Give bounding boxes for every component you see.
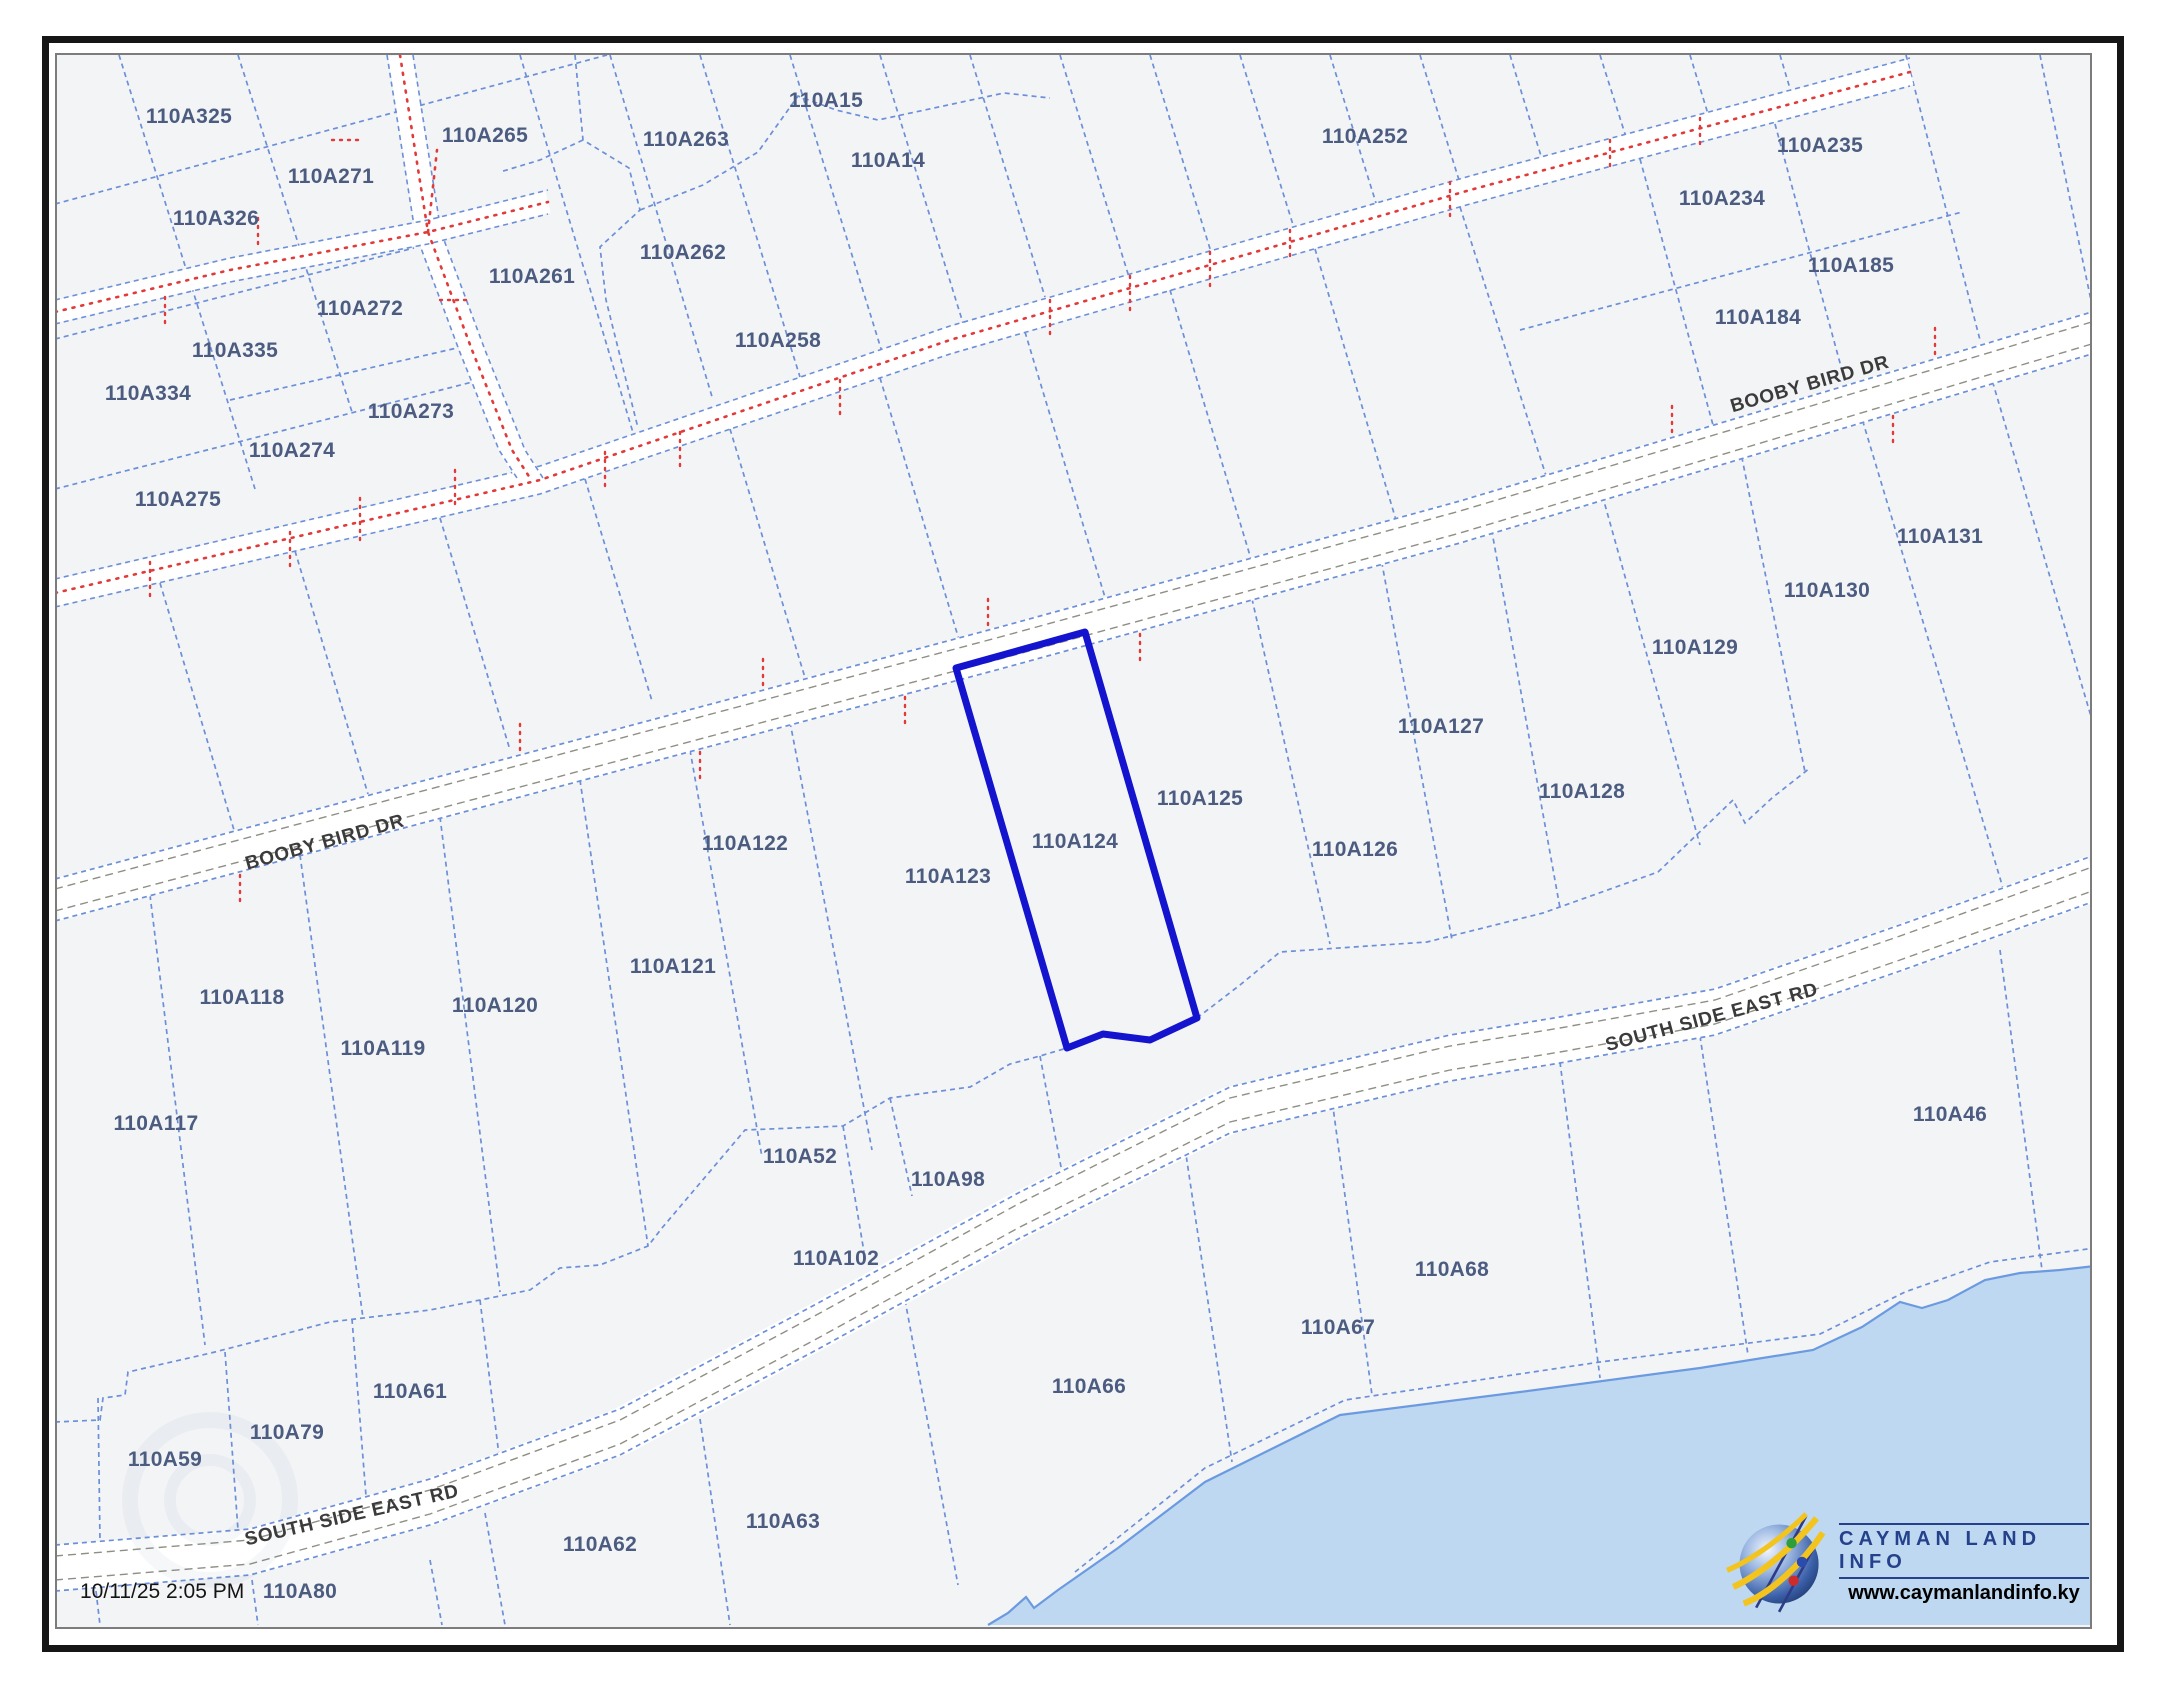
map-outer-border <box>42 36 2124 1652</box>
map-page: 110A325110A265110A263110A15110A14110A271… <box>0 0 2168 1700</box>
